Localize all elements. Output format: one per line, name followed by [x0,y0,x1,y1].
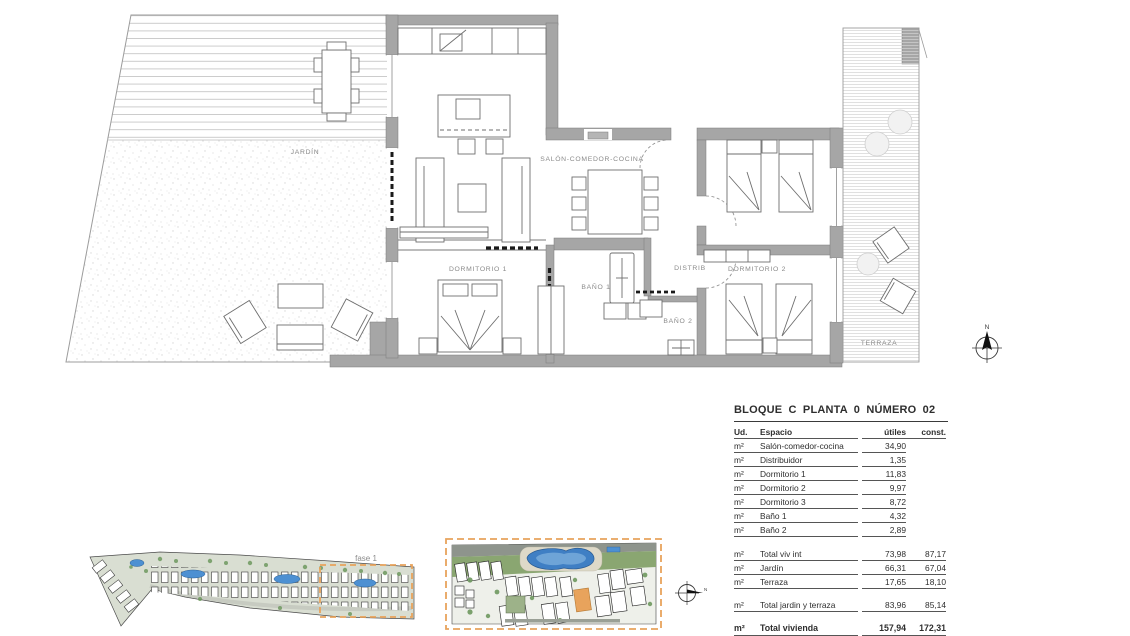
table-row: m²Distribuidor 1,35 [734,453,948,467]
bedroom2-label: DORMITORIO 2 [728,266,786,273]
north-compass: N [972,324,1002,363]
salon-label: SALÓN-COMEDOR-COCINA [540,154,644,163]
garden-label: JARDÍN [291,147,320,156]
bedroom1-furniture [419,280,564,354]
siteplan-strip: fase 1 [90,552,414,626]
table-row: m²Baño 1 4,32 [734,509,948,523]
garden-area: JARDÍN [66,15,398,362]
table-row-total: m²Total jardin y terraza 83,9685,14 [734,591,948,612]
col-ud: Ud. [734,428,760,436]
table-row: m²Jardín 66,3167,04 [734,561,948,575]
col-const: const. [906,428,946,436]
fase1-label: fase 1 [355,554,377,563]
table-row: m²Dormitorio 1 11,83 [734,467,948,481]
site-compass: N [675,581,707,605]
bedroom3-furniture [704,140,813,262]
surface-table: BLOQUE C PLANTA 0 NÚMERO 02 Ud.Espacio ú… [734,405,948,636]
table-row: m²Dormitorio 3 8,72 [734,495,948,509]
north-label: N [985,324,990,331]
table-row: m²Baño 2 2,89 [734,523,948,537]
siteplan-detail [446,539,661,631]
table-header: Ud.Espacio útilesconst. [734,424,948,439]
highlighted-unit [574,588,592,612]
table-row: m²Terraza 17,6518,10 [734,575,948,589]
living-room [400,158,530,242]
table-row: m²Salón-comedor-cocina 34,90 [734,439,948,453]
table-row: m²Dormitorio 2 9,97 [734,481,948,495]
terrace-label: TERRAZA [861,340,898,347]
kitchen [398,28,546,154]
table-row-total: m²Total viv int 73,9887,17 [734,540,948,561]
bedroom1-label: DORMITORIO 1 [449,266,507,273]
site-north-label: N [704,587,707,592]
terrace-area: TERRAZA [843,28,927,362]
col-espacio: Espacio [760,428,858,436]
dining-set [572,170,658,234]
bathroom2-fixtures [640,300,694,355]
bedroom2-furniture [726,284,812,354]
table-title: BLOQUE C PLANTA 0 NÚMERO 02 [734,405,948,422]
table-row-grand-total: m²Total vivienda 157,94172,31 [734,614,948,636]
plan-sheet: JARDÍN [0,0,1130,635]
bathroom2-label: BAÑO 2 [663,316,692,325]
col-utiles: útiles [862,428,906,436]
distributor-label: DISTRIB [674,265,706,272]
bathroom1-label: BAÑO 1 [581,282,610,291]
